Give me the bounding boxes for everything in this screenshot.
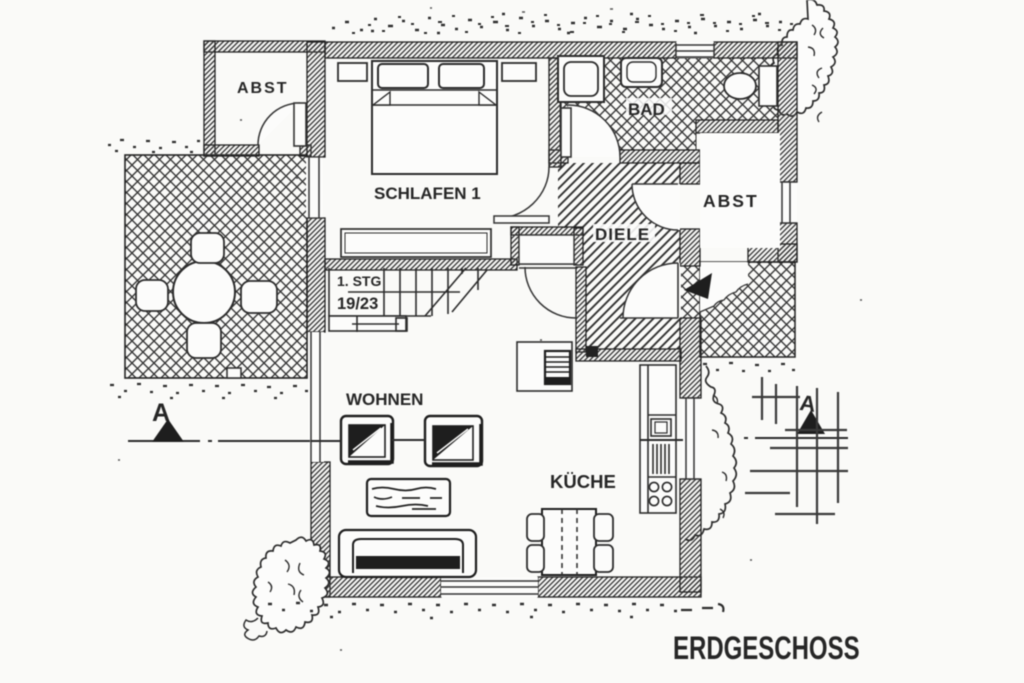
svg-text:ERDGESCHOSS: ERDGESCHOSS <box>673 630 860 666</box>
svg-text:ABST: ABST <box>703 191 759 211</box>
svg-text:A: A <box>798 390 817 417</box>
svg-text:BAD: BAD <box>628 100 665 119</box>
svg-text:19/23: 19/23 <box>337 295 378 313</box>
svg-text:ABST: ABST <box>237 80 289 97</box>
svg-text:KÜCHE: KÜCHE <box>550 471 616 492</box>
svg-text:WOHNEN: WOHNEN <box>346 390 423 409</box>
svg-text:1. STG: 1. STG <box>337 273 381 289</box>
svg-text:SCHLAFEN 1: SCHLAFEN 1 <box>374 184 481 203</box>
svg-text:DIELE: DIELE <box>595 225 650 244</box>
